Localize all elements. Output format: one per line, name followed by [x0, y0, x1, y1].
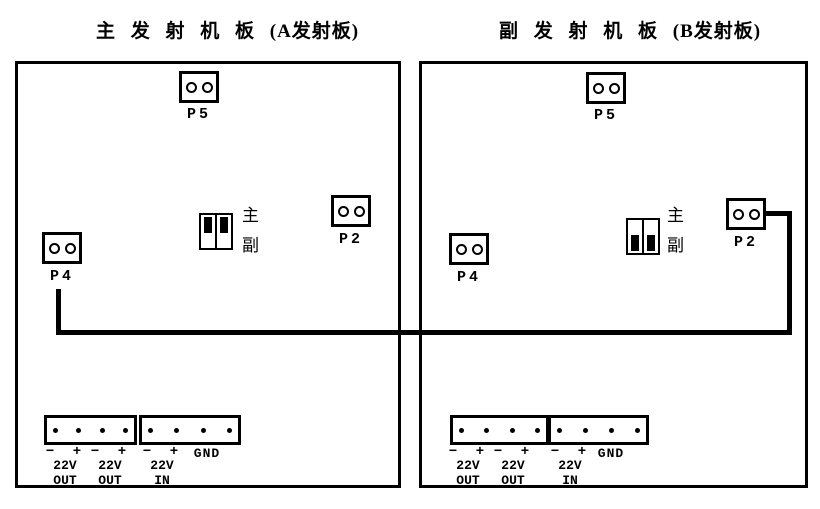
board-a-gnd-label: GND — [185, 446, 229, 461]
board-a-p4-label: P4 — [42, 268, 82, 285]
board-a-p4-connector — [42, 232, 82, 264]
pin-dot — [459, 428, 464, 433]
board-b-p5-connector — [586, 72, 626, 104]
pin-dot — [123, 428, 128, 433]
pin-dot — [557, 428, 562, 433]
pin-hole — [354, 206, 365, 217]
voltage-label: 22V — [546, 459, 594, 473]
voltage-label: 22V — [489, 459, 537, 473]
pin-dot — [227, 428, 232, 433]
connection-wire-segment-p2-riser — [787, 211, 792, 335]
pin-dot — [53, 428, 58, 433]
board-a-jumper-label-main: 主 — [242, 206, 259, 225]
pin-hole — [749, 209, 760, 220]
board-a-p2-label: P2 — [331, 231, 371, 248]
wiring-diagram: 主 发 射 机 板 (A发射板) 副 发 射 机 板 (B发射板) P5 P2 … — [0, 0, 820, 509]
direction-label: OUT — [41, 473, 89, 488]
pin-hole — [609, 83, 620, 94]
pin-hole — [186, 82, 197, 93]
board-a-title: 主 发 射 机 板 (A发射板) — [96, 16, 359, 43]
direction-label: IN — [138, 473, 186, 488]
board-b-p4-connector — [449, 233, 489, 265]
board-a-power-label-group-2: − + 22V OUT — [86, 446, 134, 488]
pin-dot — [510, 428, 515, 433]
voltage-label: 22V — [138, 459, 186, 473]
connection-wire-segment-p4-drop — [56, 289, 61, 335]
board-b-p5-label: P5 — [586, 107, 626, 124]
jumper-cell — [644, 220, 658, 253]
board-b-gnd-label: GND — [589, 446, 633, 461]
board-b-outline: P5 P2 P4 主 副 − + — [419, 61, 808, 488]
board-b-title: 副 发 射 机 板 (B发射板) — [499, 16, 761, 43]
pin-dot — [583, 428, 588, 433]
board-b-power-label-group-1: − + 22V OUT — [444, 446, 492, 488]
voltage-label: 22V — [444, 459, 492, 473]
board-b-jumper-label-sub: 副 — [667, 236, 684, 255]
jumper-cell — [201, 215, 217, 248]
voltage-label: 22V — [86, 459, 134, 473]
jumper-shunt — [204, 217, 212, 233]
board-b-p4-label: P4 — [449, 269, 489, 286]
connection-wire-segment-p2-stub — [766, 211, 792, 216]
board-b-jumper-label-main: 主 — [667, 206, 684, 225]
pin-hole — [472, 244, 483, 255]
pin-hole — [202, 82, 213, 93]
board-b-power-connector-1 — [450, 415, 549, 445]
board-a-power-label-group-3: − + 22V IN — [138, 446, 186, 488]
pin-dot — [148, 428, 153, 433]
pin-dot — [201, 428, 206, 433]
board-b-power-connector-2 — [548, 415, 649, 445]
board-a-power-connector-1 — [44, 415, 137, 445]
board-b-mode-jumper — [626, 218, 660, 255]
pin-hole — [456, 244, 467, 255]
jumper-shunt — [220, 217, 228, 233]
board-a-power-label-group-1: − + 22V OUT — [41, 446, 89, 488]
jumper-shunt — [631, 235, 639, 251]
board-a-jumper-label-sub: 副 — [242, 236, 259, 255]
pin-hole — [65, 243, 76, 254]
board-a-mode-jumper — [199, 213, 233, 250]
board-b-p2-connector — [726, 198, 766, 230]
board-a-outline: P5 P2 P4 主 副 − + — [15, 61, 401, 488]
pin-dot — [174, 428, 179, 433]
jumper-cell — [628, 220, 644, 253]
direction-label: IN — [546, 473, 594, 488]
pin-dot — [609, 428, 614, 433]
pin-dot — [100, 428, 105, 433]
connection-wire-segment-horizontal — [56, 330, 792, 335]
pin-hole — [49, 243, 60, 254]
direction-label: OUT — [489, 473, 537, 488]
direction-label: OUT — [444, 473, 492, 488]
board-b-power-label-group-2: − + 22V OUT — [489, 446, 537, 488]
pin-dot — [484, 428, 489, 433]
board-b-power-label-group-3: − + 22V IN — [546, 446, 594, 488]
jumper-cell — [217, 215, 231, 248]
board-a-power-connector-2 — [139, 415, 241, 445]
pin-hole — [338, 206, 349, 217]
pin-dot — [76, 428, 81, 433]
pin-hole — [733, 209, 744, 220]
direction-label: OUT — [86, 473, 134, 488]
voltage-label: 22V — [41, 459, 89, 473]
board-a-p5-connector — [179, 71, 219, 103]
board-a-p2-connector — [331, 195, 371, 227]
jumper-shunt — [647, 235, 655, 251]
pin-dot — [535, 428, 540, 433]
pin-dot — [635, 428, 640, 433]
pin-hole — [593, 83, 604, 94]
board-a-p5-label: P5 — [179, 106, 219, 123]
board-b-p2-label: P2 — [726, 234, 766, 251]
